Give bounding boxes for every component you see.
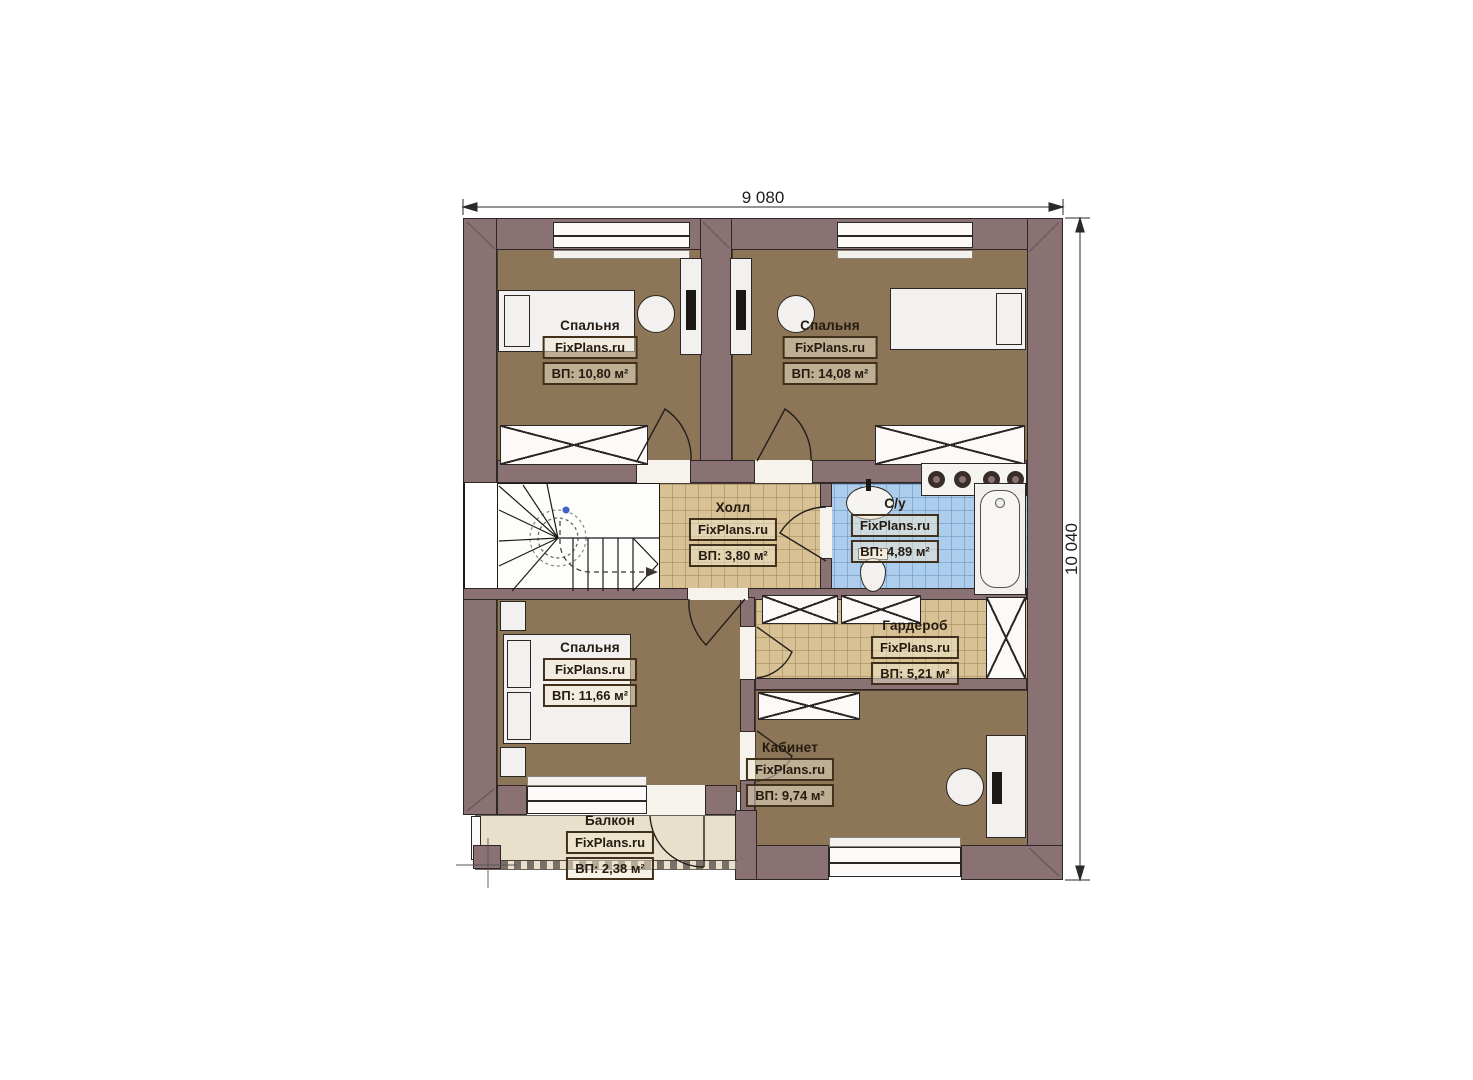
monitor-office (992, 772, 1002, 804)
bathtub (974, 483, 1026, 595)
closet-unit (986, 597, 1026, 679)
window-bedroom-1 (553, 222, 690, 248)
door-opening (647, 785, 705, 815)
closet-office (758, 692, 860, 720)
watermark: FixPlans.ru (543, 658, 637, 681)
window-sill (553, 250, 690, 259)
window-glass-line (554, 235, 689, 237)
room-label-office: Кабинет FixPlans.ru ВП: 9,74 м² (746, 740, 834, 807)
wall-bottom-right-b (961, 845, 1063, 880)
watermark: FixPlans.ru (566, 831, 654, 854)
pillow (507, 692, 531, 740)
room-area: ВП: 4,89 м² (851, 540, 939, 563)
pillow (507, 640, 531, 688)
wall-lower-mid-1 (463, 588, 688, 600)
monitor-2 (736, 290, 746, 330)
wall-bed3-right-a (740, 597, 755, 627)
room-name: Холл (689, 500, 777, 515)
wall-left-lower (463, 593, 497, 815)
room-name: Спальня (543, 318, 638, 333)
room-name: Спальня (783, 318, 878, 333)
pillow (504, 295, 530, 347)
room-label-bedroom-2: Спальня FixPlans.ru ВП: 14,08 м² (783, 318, 878, 385)
laundry-ring (954, 471, 971, 488)
room-area: ВП: 3,80 м² (689, 544, 777, 567)
room-area: ВП: 9,74 м² (746, 784, 834, 807)
wall-bed3-right-b (740, 679, 755, 732)
balcony-corner-post (473, 845, 501, 869)
door-opening (755, 460, 812, 483)
room-label-bedroom-1: Спальня FixPlans.ru ВП: 10,80 м² (543, 318, 638, 385)
door-opening (688, 588, 748, 600)
pillow (996, 293, 1022, 345)
window-office (829, 847, 961, 877)
wardrobe-bedroom-1 (500, 425, 648, 465)
wardrobe-bedroom-2 (875, 425, 1025, 465)
chair-office (946, 768, 984, 806)
faucet (866, 479, 871, 491)
window-sill (527, 776, 647, 786)
closet-unit (762, 595, 838, 624)
watermark: FixPlans.ru (746, 758, 834, 781)
watermark: FixPlans.ru (851, 514, 939, 537)
laundry-ring (928, 471, 945, 488)
wall-mid-2 (690, 460, 755, 483)
window-sill (829, 837, 961, 847)
bedside-table (500, 601, 526, 631)
window-bedroom-2 (837, 222, 973, 248)
door-opening (820, 507, 832, 558)
room-name: Кабинет (746, 740, 834, 755)
room-label-wardrobe: Гардероб FixPlans.ru ВП: 5,21 м² (871, 618, 959, 685)
room-label-bathroom: С/у FixPlans.ru ВП: 4,89 м² (851, 496, 939, 563)
room-label-bedroom-3: Спальня FixPlans.ru ВП: 11,66 м² (543, 640, 637, 707)
wall-bath-left-a (820, 483, 832, 507)
floor-plan: 9 080 10 040 Спальня FixPlans.ru ВП: 10,… (0, 0, 1473, 1080)
staircase-area (497, 483, 660, 593)
chair-1 (637, 295, 675, 333)
window-sill (837, 250, 973, 259)
wall-bottom-left-a (497, 785, 527, 815)
room-name: Гардероб (871, 618, 959, 633)
window-glass-line (838, 235, 972, 237)
bathtub-drain (995, 498, 1005, 508)
room-area: ВП: 11,66 м² (543, 684, 637, 707)
window-bedroom-3 (527, 786, 647, 814)
room-label-balcony: Балкон FixPlans.ru ВП: 2,38 м² (566, 813, 654, 880)
window-glass-line (830, 862, 960, 864)
room-area: ВП: 14,08 м² (783, 362, 878, 385)
wall-bottom-left-b (705, 785, 737, 815)
wall-right (1027, 218, 1063, 880)
dimension-right-label: 10 040 (1062, 523, 1082, 575)
watermark: FixPlans.ru (689, 518, 777, 541)
stairwell-notch (463, 483, 497, 593)
room-area: ВП: 2,38 м² (566, 857, 654, 880)
room-name: Спальня (543, 640, 637, 655)
bedside-table (500, 747, 526, 777)
watermark: FixPlans.ru (783, 336, 878, 359)
dimension-top-label: 9 080 (742, 188, 785, 208)
room-area: ВП: 5,21 м² (871, 662, 959, 685)
wall-center-vertical (700, 218, 732, 483)
room-label-hall: Холл FixPlans.ru ВП: 3,80 м² (689, 500, 777, 567)
window-glass-line (528, 800, 646, 802)
wall-balcony-right (735, 810, 757, 880)
monitor-1 (686, 290, 696, 330)
watermark: FixPlans.ru (871, 636, 959, 659)
door-opening (740, 627, 755, 679)
room-area: ВП: 10,80 м² (543, 362, 638, 385)
room-name: Балкон (566, 813, 654, 828)
room-name: С/у (851, 496, 939, 511)
watermark: FixPlans.ru (543, 336, 638, 359)
wall-left-upper (463, 218, 497, 483)
